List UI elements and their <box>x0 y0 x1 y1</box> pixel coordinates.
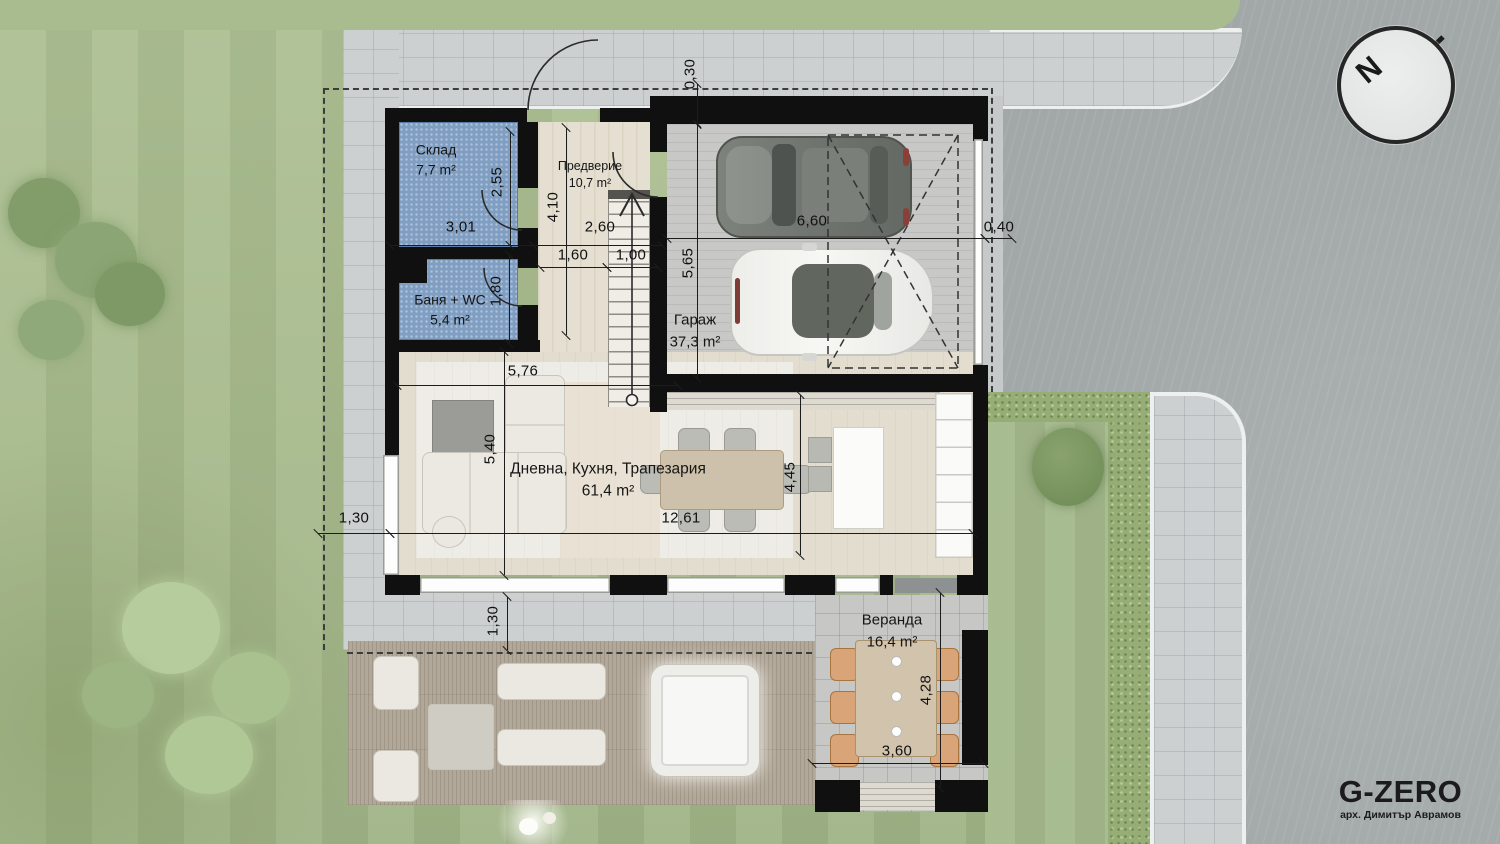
dimension-label: 5,76 <box>508 363 538 380</box>
dimension-label: 4,45 <box>782 462 799 492</box>
dimension-line <box>510 132 511 245</box>
dimension-label: 6,60 <box>797 213 827 230</box>
dimension-label: 3,60 <box>882 743 912 760</box>
room-area: 37,3 m² <box>670 331 721 353</box>
dimension-label: 3,01 <box>446 219 476 236</box>
dimension-label: 0,40 <box>984 219 1014 236</box>
dimension-label: 5,65 <box>680 248 697 278</box>
room-name: Баня + WC <box>414 290 486 310</box>
dimension-label: 2,60 <box>585 219 615 236</box>
room-label-bath: Баня + WC 5,4 m² <box>414 290 486 331</box>
dimension-line <box>812 763 984 764</box>
stairs-end-circle <box>627 395 638 406</box>
room-label-storage: Склад 7,7 m² <box>416 140 457 181</box>
dimension-label: 1,80 <box>488 276 505 306</box>
dimension-label: 5,40 <box>482 434 499 464</box>
brand-subtitle: арх. Димитър Аврамов <box>1318 809 1483 821</box>
dimension-line <box>667 238 985 239</box>
dimension-line <box>390 533 973 534</box>
room-area: 10,7 m² <box>558 175 622 192</box>
room-area: 61,4 m² <box>510 481 706 503</box>
room-name: Склад <box>416 140 457 160</box>
room-area: 5,4 m² <box>414 310 486 330</box>
dimension-line <box>509 255 510 343</box>
room-label-veranda: Веранда 16,4 m² <box>862 609 922 653</box>
dimension-label: 2,55 <box>489 167 506 197</box>
dimension-line <box>504 352 505 575</box>
dimension-label: 1,30 <box>339 510 369 527</box>
dimension-line <box>940 593 941 788</box>
north-arrow-icon <box>1337 26 1455 144</box>
room-name: Веранда <box>862 609 922 631</box>
room-label-entry: Предверие 10,7 m² <box>558 158 622 192</box>
room-name: Предверие <box>558 158 622 175</box>
dimension-line <box>697 84 698 124</box>
dimension-line <box>507 597 508 650</box>
dimension-label: 1,30 <box>485 606 502 636</box>
room-area: 7,7 m² <box>416 160 457 180</box>
room-name: Дневна, Кухня, Трапезария <box>510 459 706 481</box>
dimension-label: 0,30 <box>682 59 699 89</box>
room-area: 16,4 m² <box>862 631 922 653</box>
dimension-label: 1,00 <box>616 247 646 264</box>
room-label-garage: Гараж 37,3 m² <box>670 309 721 353</box>
dimension-label: 12,61 <box>661 510 700 527</box>
room-label-living: Дневна, Кухня, Трапезария 61,4 m² <box>510 459 706 504</box>
brand-name: G-ZERO <box>1318 776 1483 807</box>
dimension-line <box>985 238 1012 239</box>
brand-logo: G-ZERO арх. Димитър Аврамов <box>1318 776 1483 821</box>
floor-plan-canvas: 0,30 3,01 2,60 1,60 1,00 2,55 4,10 1,80 … <box>0 0 1500 844</box>
dimension-label: 4,28 <box>918 675 935 705</box>
plan-annotations <box>0 0 1500 844</box>
entry-door-arc <box>528 40 598 110</box>
dimension-line <box>318 533 390 534</box>
dimension-label: 4,10 <box>545 192 562 222</box>
dimension-line <box>800 395 801 555</box>
dimension-line <box>540 267 607 268</box>
dimension-line <box>397 385 678 386</box>
dimension-line <box>607 267 658 268</box>
room-name: Гараж <box>670 309 721 331</box>
dimension-label: 1,60 <box>558 247 588 264</box>
